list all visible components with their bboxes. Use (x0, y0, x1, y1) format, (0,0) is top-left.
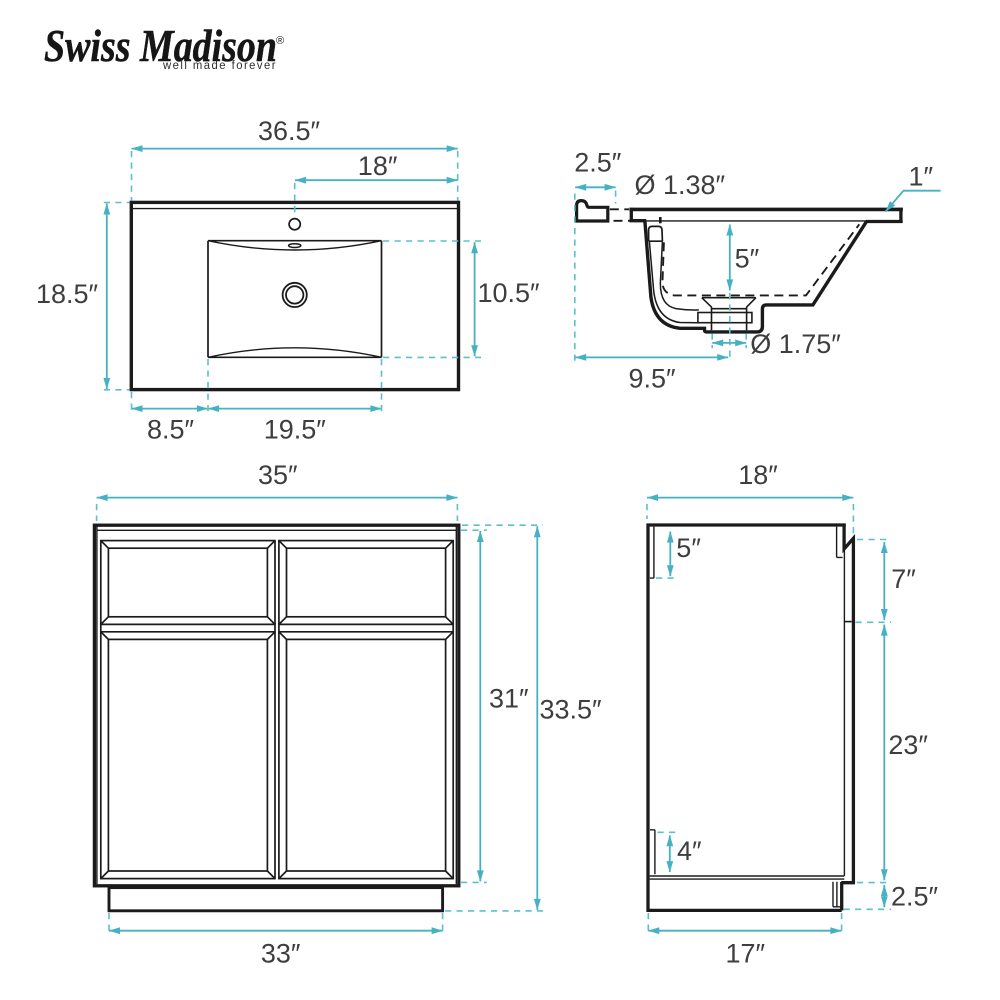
svg-text:2.5″: 2.5″ (574, 148, 622, 178)
svg-text:well made forever: well made forever (162, 60, 277, 72)
svg-text:Ø 1.38″: Ø 1.38″ (634, 170, 725, 200)
svg-text:7″: 7″ (891, 564, 916, 594)
svg-text:4″: 4″ (677, 836, 702, 866)
svg-text:9.5″: 9.5″ (628, 364, 676, 394)
svg-text:8.5″: 8.5″ (147, 415, 195, 445)
svg-text:36.5″: 36.5″ (258, 116, 321, 146)
svg-text:18″: 18″ (738, 460, 778, 490)
svg-text:5″: 5″ (676, 533, 701, 563)
svg-text:33″: 33″ (261, 939, 301, 969)
svg-text:17″: 17″ (726, 939, 766, 969)
svg-text:19.5″: 19.5″ (264, 415, 327, 445)
svg-text:Ø 1.75″: Ø 1.75″ (750, 329, 841, 359)
svg-text:18.5″: 18.5″ (36, 279, 99, 309)
svg-text:1″: 1″ (909, 162, 934, 192)
svg-text:35″: 35″ (258, 460, 298, 490)
svg-text:2.5″: 2.5″ (891, 882, 939, 912)
svg-text:18″: 18″ (358, 151, 398, 181)
svg-text:31″: 31″ (489, 684, 529, 714)
svg-text:5″: 5″ (735, 244, 760, 274)
svg-text:33.5″: 33.5″ (539, 695, 602, 725)
svg-text:23″: 23″ (888, 730, 928, 760)
svg-text:10.5″: 10.5″ (477, 278, 540, 308)
svg-text:®: ® (276, 35, 284, 47)
